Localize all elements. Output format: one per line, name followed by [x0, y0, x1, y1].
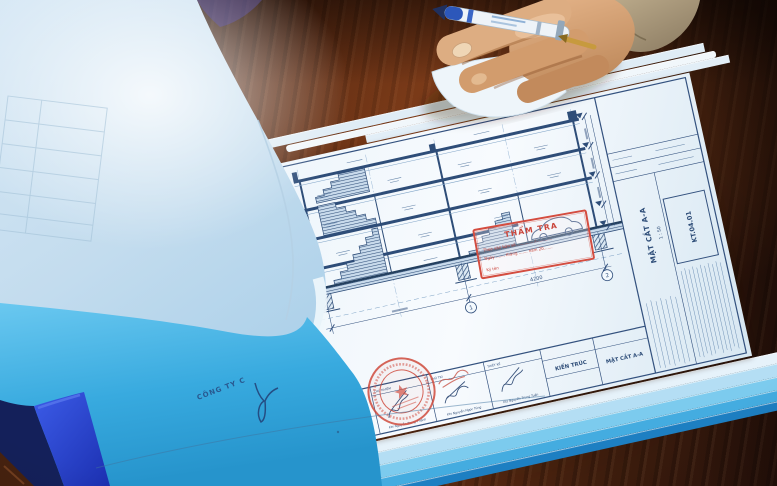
hand-with-pen: [0, 0, 777, 486]
photo-blueprints-on-desk: 4200 2870 1 2: [0, 0, 777, 486]
